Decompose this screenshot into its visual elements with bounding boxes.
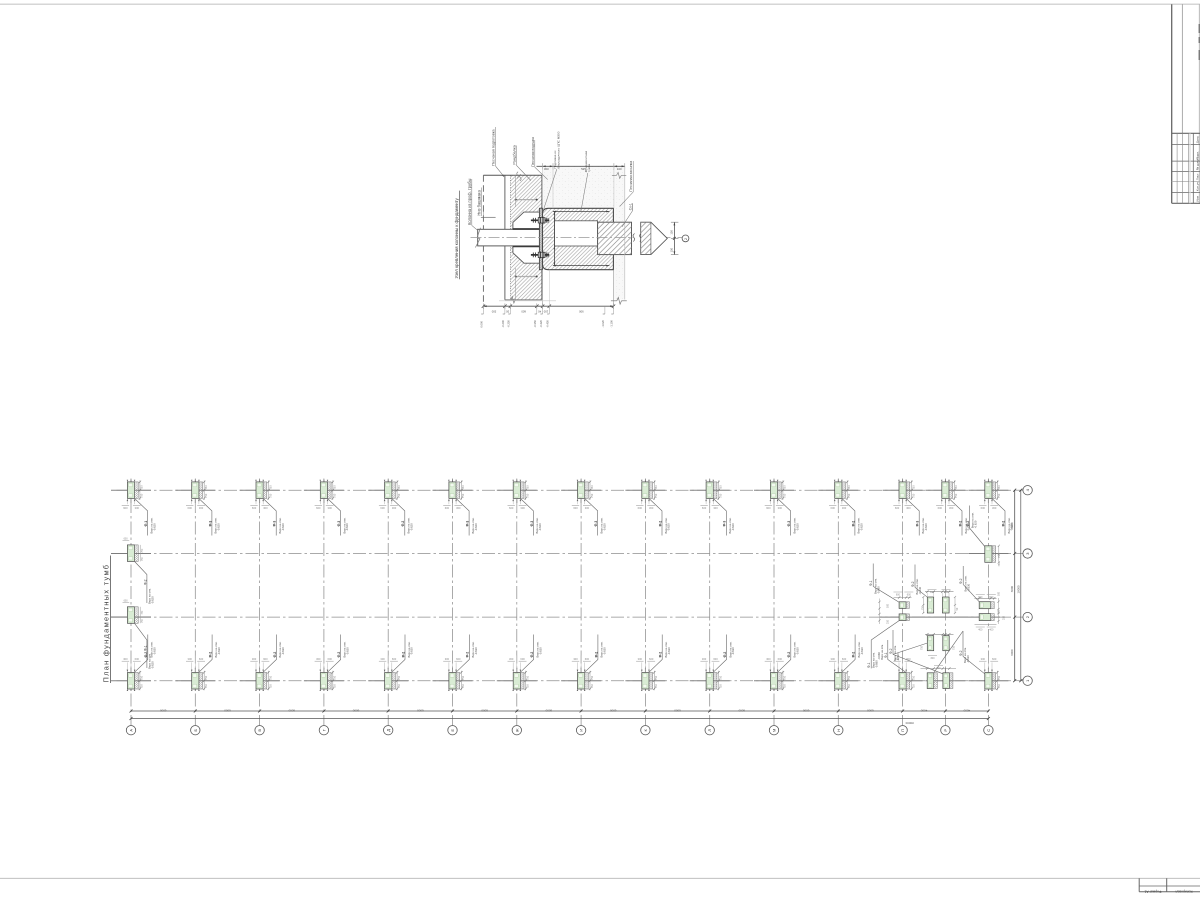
svg-text:Р: Р	[943, 729, 948, 732]
svg-text:Д: Д	[386, 729, 391, 732]
svg-text:-0.420: -0.420	[539, 320, 543, 328]
svg-text:Ф-2: Ф-2	[594, 652, 598, 658]
svg-text:4000: 4000	[920, 708, 927, 712]
svg-text:300: 300	[831, 657, 836, 661]
svg-text:Ф-2: Ф-2	[852, 652, 856, 658]
svg-text:750: 750	[527, 493, 530, 498]
svg-text:А: А	[129, 729, 134, 732]
svg-text:Ф-2: Ф-2	[659, 652, 663, 658]
svg-text:Ф-2: Ф-2	[958, 521, 962, 527]
svg-text:Ф-2: Ф-2	[723, 652, 727, 658]
svg-text:600: 600	[585, 657, 590, 661]
svg-text:4: 4	[1025, 488, 1030, 491]
svg-text:750: 750	[398, 493, 401, 498]
svg-text:300: 300	[842, 506, 847, 510]
svg-text:-0.630: -0.630	[731, 647, 735, 655]
svg-text:6000: 6000	[288, 708, 295, 712]
svg-text:750: 750	[269, 493, 272, 498]
svg-text:Ф-2: Ф-2	[787, 652, 791, 658]
svg-text:2: 2	[684, 238, 688, 240]
svg-text:300: 300	[544, 167, 549, 171]
svg-text:900: 900	[579, 310, 584, 314]
svg-text:600: 600	[124, 538, 129, 541]
svg-text:600: 600	[456, 657, 461, 661]
svg-text:Ф-2: Ф-2	[851, 521, 855, 527]
svg-text:-1.020: -1.020	[601, 320, 605, 328]
svg-text:-0.630: -0.630	[281, 647, 285, 655]
svg-text:Ф-1: Ф-1	[884, 652, 888, 658]
svg-text:-0.620: -0.620	[151, 596, 155, 604]
svg-text:750: 750	[334, 675, 337, 680]
svg-text:750: 750	[527, 675, 530, 680]
svg-text:Ж: Ж	[514, 728, 519, 732]
svg-text:750: 750	[998, 553, 1001, 558]
svg-text:-0.620: -0.620	[860, 523, 864, 531]
svg-text:750: 750	[398, 684, 401, 689]
svg-text:Ф-2: Ф-2	[337, 652, 341, 658]
svg-text:Ф-3: Ф-3	[466, 521, 470, 527]
svg-text:1: 1	[1025, 679, 1030, 682]
svg-text:2: 2	[1025, 615, 1030, 618]
svg-text:380: 380	[930, 591, 935, 594]
svg-text:Ф-2: Ф-2	[1001, 521, 1005, 527]
svg-text:Песчаная подготовка: Песчаная подготовка	[492, 129, 496, 166]
svg-text:750: 750	[784, 493, 787, 498]
svg-text:750: 750	[142, 556, 144, 561]
svg-text:750: 750	[205, 684, 208, 689]
svg-text:Ф-3: Ф-3	[787, 521, 791, 527]
svg-text:600: 600	[638, 506, 643, 510]
svg-text:Г: Г	[321, 728, 326, 731]
svg-text:Ф-2: Ф-2	[966, 521, 970, 527]
svg-text:600: 600	[135, 657, 140, 661]
svg-text:300: 300	[585, 506, 590, 510]
svg-text:0.000: 0.000	[480, 320, 484, 327]
svg-text:600: 600	[520, 657, 525, 661]
svg-text:18000: 18000	[1016, 585, 1020, 593]
svg-text:600: 600	[896, 593, 901, 596]
svg-text:300: 300	[509, 657, 514, 661]
svg-text:-0.620: -0.620	[731, 523, 735, 531]
svg-text:750: 750	[334, 493, 337, 498]
svg-text:Н: Н	[836, 729, 841, 732]
svg-text:Ф-2: Ф-2	[209, 652, 213, 658]
svg-text:Ф-2: Ф-2	[466, 652, 470, 658]
svg-text:750: 750	[141, 684, 144, 689]
svg-text:750: 750	[462, 485, 465, 490]
svg-text:500: 500	[998, 591, 1001, 596]
svg-text:Песчаная подушка: Песчаная подушка	[531, 137, 535, 167]
svg-text:300: 300	[520, 506, 525, 510]
svg-text:600: 600	[263, 657, 268, 661]
svg-text:750: 750	[269, 485, 272, 490]
svg-text:-0.620: -0.620	[151, 661, 155, 669]
svg-text:750: 750	[462, 684, 465, 689]
svg-text:750: 750	[591, 485, 594, 490]
svg-text:600: 600	[445, 506, 450, 510]
svg-text:750: 750	[998, 493, 1001, 498]
svg-text:-0.680: -0.680	[874, 660, 878, 668]
svg-text:750: 750	[141, 493, 144, 498]
svg-text:Ф-3: Ф-3	[594, 521, 598, 527]
svg-text:300: 300	[392, 506, 397, 510]
svg-text:750: 750	[998, 684, 1001, 689]
svg-text:Ф-2: Ф-2	[401, 652, 405, 658]
svg-text:600: 600	[702, 506, 707, 510]
svg-text:6000: 6000	[224, 708, 231, 712]
svg-text:750: 750	[141, 485, 144, 490]
svg-text:Ф-2: Ф-2	[143, 579, 147, 585]
svg-text:Ф-3: Ф-3	[208, 521, 212, 527]
svg-text:600: 600	[989, 596, 994, 599]
svg-text:-0.620: -0.620	[1010, 523, 1014, 531]
svg-text:М: М	[772, 729, 777, 732]
svg-text:750: 750	[269, 684, 272, 689]
svg-text:750: 750	[719, 493, 722, 498]
svg-text:6000: 6000	[738, 708, 745, 712]
svg-text:Е: Е	[450, 729, 455, 732]
svg-text:План фундаментных тумб: План фундаментных тумб	[102, 564, 111, 683]
svg-text:-0.620: -0.620	[538, 523, 542, 531]
svg-text:-0.630: -0.630	[153, 647, 157, 655]
svg-text:750: 750	[591, 684, 594, 689]
svg-text:750: 750	[784, 485, 787, 490]
svg-text:750: 750	[784, 675, 787, 680]
svg-text:750: 750	[848, 493, 851, 498]
svg-text:-0.620: -0.620	[924, 523, 928, 531]
svg-text:750: 750	[912, 485, 915, 490]
svg-text:-0.200: -0.200	[501, 320, 505, 328]
svg-text:600: 600	[649, 657, 654, 661]
svg-text:750: 750	[527, 485, 530, 490]
svg-text:250: 250	[1003, 615, 1006, 620]
svg-text:-0.630: -0.630	[603, 647, 607, 655]
svg-text:Ф-2: Ф-2	[959, 578, 963, 584]
svg-text:4000: 4000	[963, 708, 970, 712]
svg-text:Ф-2: Ф-2	[959, 650, 963, 656]
svg-text:-0.620: -0.620	[602, 523, 606, 531]
svg-text:6000: 6000	[1010, 585, 1014, 592]
svg-text:300: 300	[949, 506, 954, 510]
svg-text:300: 300	[992, 506, 997, 510]
svg-text:Б: Б	[193, 729, 198, 732]
svg-text:600: 600	[978, 596, 983, 599]
svg-text:-0.680: -0.680	[876, 586, 880, 594]
svg-text:750: 750	[998, 675, 1001, 680]
svg-text:750: 750	[719, 675, 722, 680]
svg-text:Ф-2: Ф-2	[911, 581, 915, 587]
svg-text:-0.620: -0.620	[281, 523, 285, 531]
svg-text:600: 600	[842, 657, 847, 661]
svg-text:750: 750	[462, 493, 465, 498]
svg-text:Ф-2: Ф-2	[530, 652, 534, 658]
svg-text:750: 750	[205, 485, 208, 490]
svg-text:6000: 6000	[1010, 649, 1014, 656]
svg-text:750: 750	[142, 618, 144, 623]
svg-text:Лист: Лист	[1195, 173, 1199, 180]
svg-text:750: 750	[269, 675, 272, 680]
svg-text:150: 150	[670, 247, 674, 252]
svg-text:750: 750	[142, 548, 144, 553]
svg-text:-0.630: -0.630	[474, 647, 478, 655]
svg-text:750: 750	[848, 675, 851, 680]
svg-text:Ф-2: Ф-2	[401, 521, 405, 527]
svg-text:300: 300	[981, 657, 986, 661]
svg-text:И: И	[579, 729, 584, 732]
svg-text:Дата: Дата	[1195, 136, 1199, 143]
svg-text:750: 750	[955, 493, 958, 498]
svg-text:750: 750	[205, 675, 208, 680]
svg-text:40: 40	[538, 310, 541, 314]
svg-text:6000: 6000	[867, 708, 874, 712]
svg-text:300: 300	[778, 506, 783, 510]
svg-text:300: 300	[199, 506, 204, 510]
svg-text:600: 600	[199, 657, 204, 661]
svg-text:300: 300	[252, 657, 257, 661]
svg-text:600: 600	[316, 506, 321, 510]
svg-text:50: 50	[956, 607, 959, 610]
svg-text:600: 600	[188, 506, 193, 510]
svg-text:Ф-3: Ф-3	[337, 521, 341, 527]
svg-text:150: 150	[944, 591, 949, 594]
svg-text:300: 300	[316, 657, 321, 661]
svg-text:6000: 6000	[160, 708, 167, 712]
svg-text:400: 400	[989, 628, 994, 631]
svg-text:Узел крепления колонны к фунда: Узел крепления колонны к фундаменту	[454, 197, 459, 278]
svg-text:600: 600	[778, 657, 783, 661]
svg-text:750: 750	[719, 485, 722, 490]
svg-text:-0.620: -0.620	[667, 523, 671, 531]
svg-text:Ф-3: Ф-3	[916, 521, 920, 527]
svg-text:750: 750	[398, 675, 401, 680]
svg-text:750: 750	[955, 485, 958, 490]
svg-text:300: 300	[491, 310, 496, 314]
svg-text:750: 750	[848, 684, 851, 689]
svg-text:600: 600	[936, 667, 941, 670]
svg-text:-0.620: -0.620	[973, 520, 977, 528]
svg-text:-0.630: -0.630	[860, 647, 864, 655]
svg-text:-0.620: -0.620	[410, 523, 414, 531]
svg-text:-0.630: -0.630	[538, 647, 542, 655]
svg-text:600: 600	[831, 506, 836, 510]
svg-text:750: 750	[205, 493, 208, 498]
svg-text:Ф-1: Ф-1	[867, 662, 871, 668]
svg-text:Ф-2: Ф-2	[273, 652, 277, 658]
svg-text:-0.450: -0.450	[546, 320, 550, 328]
svg-text:К: К	[643, 728, 648, 731]
svg-text:-0.630: -0.630	[217, 647, 221, 655]
svg-text:-0.620: -0.620	[795, 523, 799, 531]
svg-text:Л: Л	[707, 729, 712, 732]
svg-text:750: 750	[784, 684, 787, 689]
svg-text:300: 300	[766, 657, 771, 661]
svg-text:750: 750	[527, 684, 530, 689]
svg-text:-0.630: -0.630	[410, 647, 414, 655]
svg-text:750: 750	[912, 684, 915, 689]
svg-text:750: 750	[398, 485, 401, 490]
svg-text:П: П	[900, 729, 905, 732]
svg-text:-0.630: -0.630	[667, 647, 671, 655]
svg-text:Ф-2: Ф-2	[144, 652, 148, 658]
svg-text:600: 600	[573, 506, 578, 510]
svg-text:400: 400	[978, 628, 983, 631]
svg-text:С: С	[986, 729, 991, 732]
svg-text:Ф-1: Ф-1	[144, 521, 148, 527]
svg-text:6000: 6000	[417, 708, 424, 712]
svg-text:750: 750	[591, 675, 594, 680]
svg-text:Копировал: Копировал	[1175, 889, 1192, 893]
svg-text:Колонна из проф. трубы: Колонна из проф. трубы	[467, 179, 472, 225]
svg-text:-1.100: -1.100	[610, 320, 614, 328]
svg-text:3: 3	[1025, 552, 1030, 555]
svg-text:150: 150	[670, 230, 674, 235]
svg-text:500: 500	[887, 603, 890, 608]
svg-text:750: 750	[921, 645, 924, 650]
svg-text:600: 600	[380, 506, 385, 510]
svg-text:750: 750	[141, 675, 144, 680]
svg-text:750: 750	[922, 605, 925, 610]
svg-text:Ф-3: Ф-3	[530, 521, 534, 527]
svg-text:300: 300	[573, 657, 578, 661]
svg-text:-0.350: -0.350	[533, 320, 537, 328]
svg-text:750: 750	[998, 562, 1001, 567]
svg-text:750: 750	[142, 610, 144, 615]
svg-text:300: 300	[263, 506, 268, 510]
svg-text:Кол.уч: Кол.уч	[1195, 182, 1199, 192]
svg-text:600: 600	[124, 599, 129, 602]
svg-text:300: 300	[445, 657, 450, 661]
svg-text:6000: 6000	[610, 708, 617, 712]
svg-text:В: В	[257, 729, 262, 732]
svg-text:Ф-2: Ф-2	[658, 521, 662, 527]
svg-text:750: 750	[848, 485, 851, 490]
svg-text:6000: 6000	[802, 708, 809, 712]
svg-text:300: 300	[188, 657, 193, 661]
svg-text:750: 750	[655, 675, 658, 680]
svg-text:300: 300	[998, 609, 1001, 614]
svg-text:Песчаная засыпка: Песчаная засыпка	[629, 161, 633, 192]
svg-text:750: 750	[591, 493, 594, 498]
svg-text:80000: 80000	[905, 721, 913, 725]
svg-text:750: 750	[912, 675, 915, 680]
svg-text:50: 50	[506, 310, 509, 314]
svg-text:750: 750	[912, 493, 915, 498]
svg-text:300: 300	[649, 506, 654, 510]
svg-text:600: 600	[907, 593, 912, 596]
svg-text:600: 600	[123, 506, 128, 510]
svg-text:600: 600	[992, 657, 997, 661]
svg-text:-0.630: -0.630	[345, 647, 349, 655]
svg-text:600: 600	[392, 657, 397, 661]
svg-text:100: 100	[617, 167, 622, 171]
svg-text:Ф-3: Ф-3	[723, 521, 727, 527]
svg-text:Формат А1: Формат А1	[1144, 889, 1161, 893]
svg-text:600: 600	[328, 657, 333, 661]
svg-text:-0.630: -0.630	[796, 647, 800, 655]
svg-text:Низ башмака: Низ башмака	[476, 190, 481, 216]
svg-text:750: 750	[462, 675, 465, 680]
svg-text:750: 750	[655, 684, 658, 689]
svg-text:600: 600	[521, 310, 526, 314]
svg-text:300: 300	[702, 657, 707, 661]
svg-text:100: 100	[543, 310, 548, 314]
svg-text:-0.620: -0.620	[217, 523, 221, 531]
svg-text:750: 750	[998, 485, 1001, 490]
svg-text:Ф-3: Ф-3	[273, 521, 277, 527]
svg-text:300: 300	[906, 506, 911, 510]
svg-text:Ф-1: Ф-1	[143, 645, 147, 651]
svg-text:750: 750	[334, 485, 337, 490]
svg-text:-0.620: -0.620	[152, 523, 156, 531]
svg-text:6000: 6000	[545, 708, 552, 712]
svg-text:-0.620: -0.620	[474, 523, 478, 531]
svg-text:750: 750	[719, 684, 722, 689]
svg-text:300: 300	[713, 506, 718, 510]
svg-text:300: 300	[456, 506, 461, 510]
svg-text:750: 750	[334, 684, 337, 689]
svg-text:600: 600	[252, 506, 257, 510]
svg-text:600: 600	[938, 506, 943, 510]
svg-text:Изм: Изм	[1195, 196, 1199, 202]
svg-text:600: 600	[895, 506, 900, 510]
svg-text:250: 250	[887, 619, 890, 624]
svg-text:№ докум.: № докум.	[1195, 156, 1199, 170]
svg-text:Ф-1: Ф-1	[869, 580, 873, 586]
svg-text:-0.250: -0.250	[507, 320, 511, 328]
svg-text:безусадочного ЦПС М300: безусадочного ЦПС М300	[556, 131, 560, 168]
svg-text:-0.620: -0.620	[345, 523, 349, 531]
svg-text:300: 300	[135, 506, 140, 510]
svg-text:600: 600	[766, 506, 771, 510]
svg-text:750: 750	[655, 493, 658, 498]
svg-text:Ф-2: Ф-2	[889, 648, 893, 654]
svg-text:300: 300	[123, 657, 128, 661]
svg-text:750: 750	[655, 485, 658, 490]
svg-text:6000: 6000	[352, 708, 359, 712]
svg-text:300: 300	[380, 657, 385, 661]
svg-text:750: 750	[953, 645, 956, 650]
svg-text:600: 600	[713, 657, 718, 661]
svg-text:тумба: тумба	[587, 163, 591, 172]
svg-text:-0.680: -0.680	[877, 652, 881, 660]
svg-text:Ск-1: Ск-1	[628, 203, 632, 210]
svg-text:600: 600	[509, 506, 514, 510]
svg-text:6000: 6000	[674, 708, 681, 712]
svg-text:300: 300	[328, 506, 333, 510]
svg-text:6000: 6000	[481, 708, 488, 712]
svg-text:Рандбалка: Рандбалка	[511, 144, 516, 164]
svg-text:600: 600	[981, 506, 986, 510]
svg-text:300: 300	[638, 657, 643, 661]
svg-text:300: 300	[930, 657, 935, 660]
